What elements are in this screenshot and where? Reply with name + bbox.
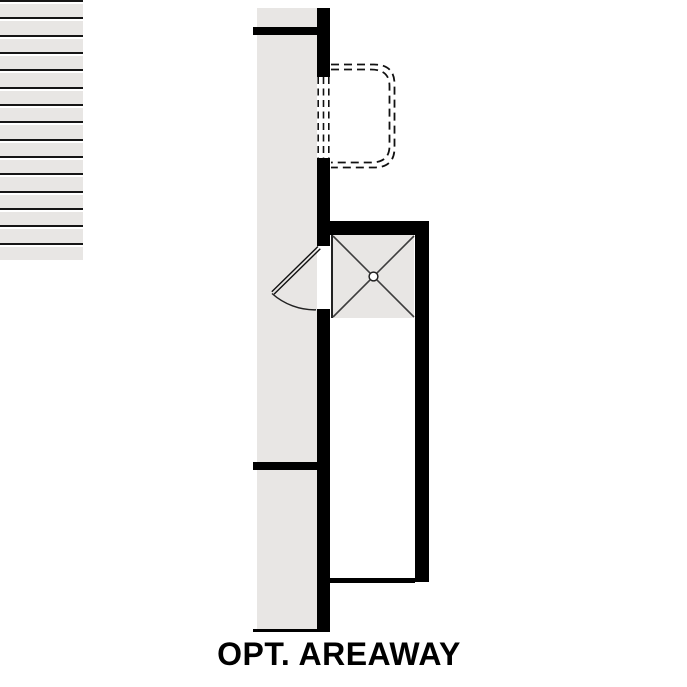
stair-left-wall-lower-segment <box>317 309 330 632</box>
stair-tread <box>0 156 83 173</box>
stair-tread <box>0 173 83 190</box>
stair-tread <box>0 139 83 156</box>
stair-tread <box>0 69 83 86</box>
stair-tread <box>0 0 83 17</box>
stair-left-wall-upper-segment <box>317 8 330 77</box>
stair-tread <box>0 87 83 104</box>
wall-top-left-stub <box>253 27 317 35</box>
stairwell-bottom-wall <box>330 578 415 583</box>
floor-plan: OPT. AREAWAY <box>0 0 687 687</box>
stair-tread <box>0 243 83 260</box>
stair-tread <box>0 191 83 208</box>
stair-run <box>0 0 83 260</box>
stair-tread <box>0 225 83 242</box>
stair-tread <box>0 35 83 52</box>
stair-tread <box>0 208 83 225</box>
areaway-outline-inner <box>331 70 390 163</box>
stairwell-right-wall <box>415 221 429 582</box>
wall-mid-left-stub <box>253 462 317 470</box>
stair-tread <box>0 17 83 34</box>
stair-tread <box>0 121 83 138</box>
areaway-outline-outer <box>331 65 395 168</box>
plan-title: OPT. AREAWAY <box>217 636 461 673</box>
linework-overlay <box>0 0 687 687</box>
stair-landing <box>331 235 414 318</box>
hall-floor <box>257 8 317 630</box>
stair-tread <box>0 104 83 121</box>
stair-tread <box>0 52 83 69</box>
stair-left-wall-middle-segment <box>317 158 330 246</box>
